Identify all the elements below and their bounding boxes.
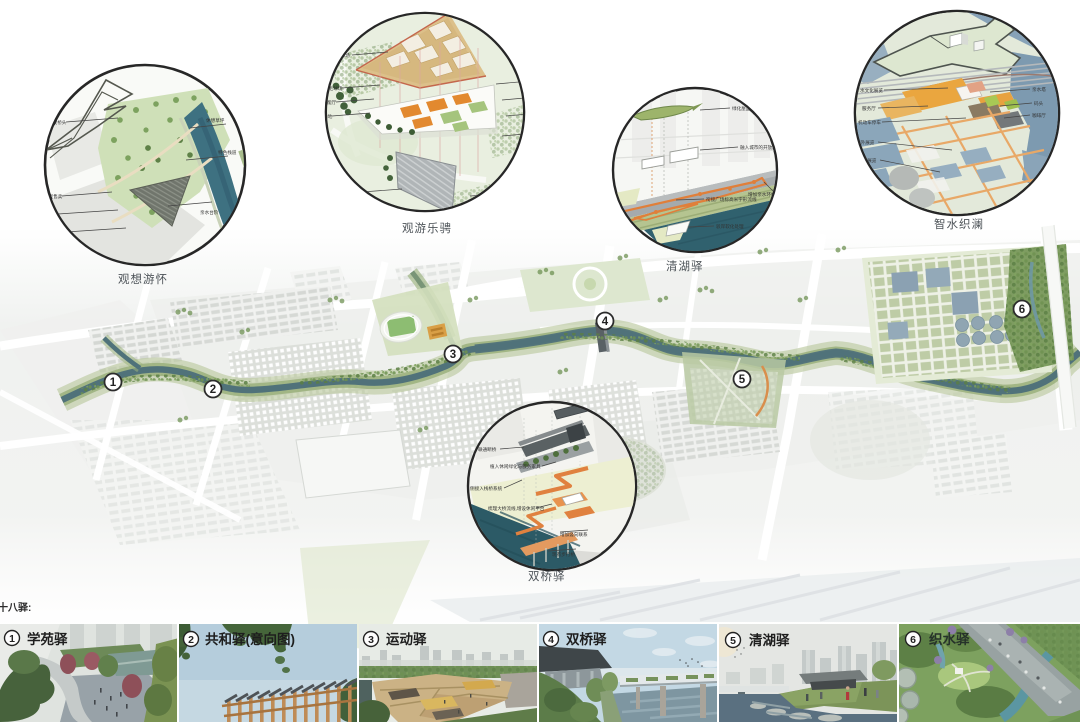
svg-text:3: 3 — [450, 349, 456, 361]
svg-text:联通断桥: 联通断桥 — [478, 446, 497, 453]
svg-text:6: 6 — [1019, 304, 1025, 316]
svg-text:梳理大桥流线,增设休闲平台: 梳理大桥流线,增设休闲平台 — [488, 505, 545, 512]
svg-text:亲水台阶: 亲水台阶 — [200, 209, 219, 216]
svg-text:观游乐骋: 观游乐骋 — [402, 221, 452, 235]
svg-text:服务厅: 服务厅 — [862, 105, 876, 112]
svg-text:现有步行桥: 现有步行桥 — [552, 551, 575, 558]
svg-text:共和驿(意向图): 共和驿(意向图) — [205, 631, 295, 647]
svg-text:机动车停车: 机动车停车 — [858, 119, 881, 126]
svg-text:学苑驿: 学苑驿 — [27, 631, 68, 647]
svg-text:衔接广场标高米字形流线: 衔接广场标高米字形流线 — [706, 196, 757, 203]
svg-text:驳岸软化处理: 驳岸软化处理 — [716, 223, 744, 230]
svg-text:特色栈道: 特色栈道 — [218, 149, 237, 156]
svg-text:植入休闲绿化与服务家具: 植入休闲绿化与服务家具 — [490, 463, 541, 470]
svg-text:增加竖向联系: 增加竖向联系 — [560, 531, 588, 538]
svg-text:6: 6 — [910, 634, 916, 646]
svg-text:3: 3 — [368, 634, 374, 646]
svg-text:休憩草坪: 休憩草坪 — [206, 117, 225, 124]
svg-text:清湖驿: 清湖驿 — [666, 259, 704, 273]
svg-text:侧接入栈桥系统: 侧接入栈桥系统 — [470, 485, 503, 492]
svg-text:码头: 码头 — [1034, 100, 1044, 107]
svg-text:观想游怀: 观想游怀 — [118, 272, 168, 286]
svg-text:水文化展览: 水文化展览 — [860, 87, 883, 94]
svg-text:2: 2 — [210, 384, 216, 396]
svg-text:十八驿:: 十八驿: — [0, 601, 31, 614]
svg-text:运动驿: 运动驿 — [386, 631, 427, 647]
svg-text:1: 1 — [110, 377, 117, 389]
svg-text:4: 4 — [548, 634, 554, 646]
svg-text:咖啡厅: 咖啡厅 — [1032, 112, 1046, 119]
svg-text:双桥驿: 双桥驿 — [566, 631, 607, 647]
svg-text:织水驿: 织水驿 — [929, 631, 970, 647]
svg-text:5: 5 — [739, 374, 746, 386]
svg-text:亲水塔: 亲水塔 — [1032, 86, 1046, 93]
svg-text:2: 2 — [188, 634, 194, 646]
svg-text:智水织澜: 智水织澜 — [934, 217, 984, 231]
svg-text:1: 1 — [9, 633, 15, 645]
svg-text:4: 4 — [602, 316, 609, 328]
svg-text:清湖驿: 清湖驿 — [749, 632, 790, 648]
svg-text:双桥驿: 双桥驿 — [528, 570, 566, 583]
svg-text:5: 5 — [730, 635, 736, 647]
